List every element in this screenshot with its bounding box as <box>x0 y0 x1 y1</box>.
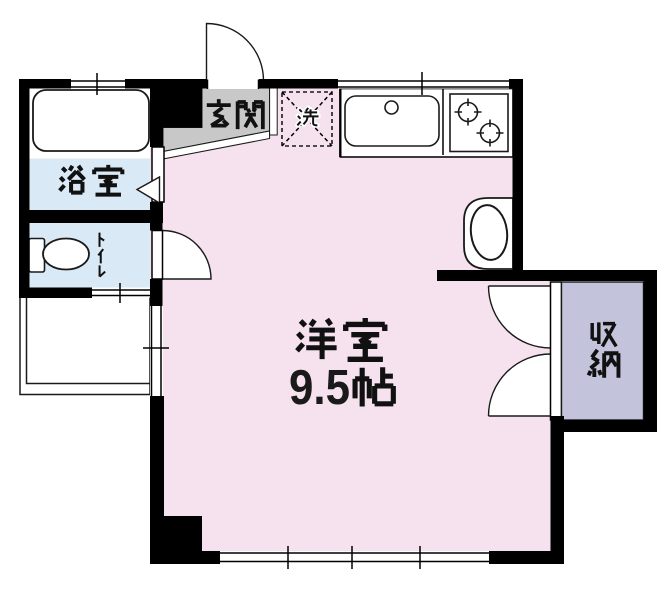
svg-text:9.5: 9.5 <box>289 361 350 415</box>
